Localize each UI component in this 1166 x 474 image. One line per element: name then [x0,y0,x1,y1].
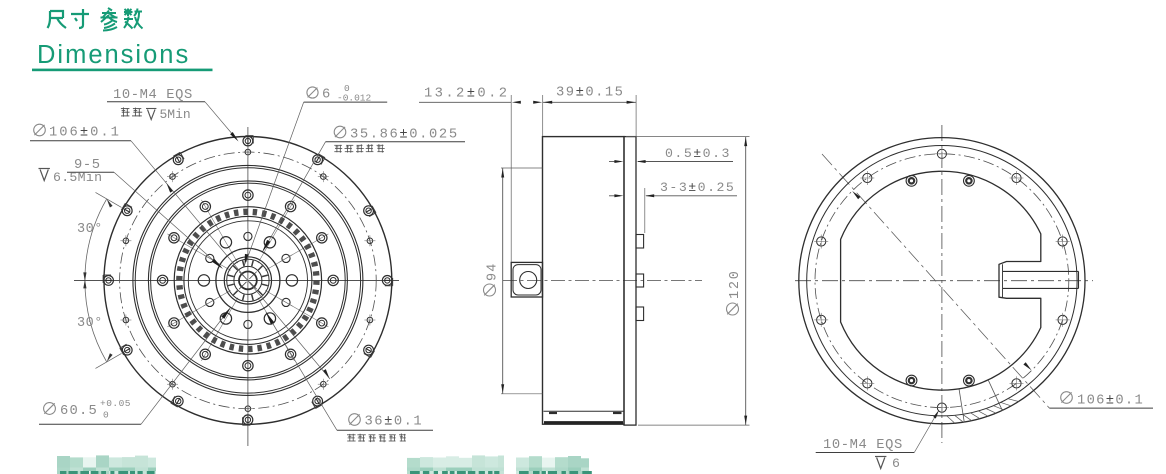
svg-text:106±0.1: 106±0.1 [1077,394,1144,409]
svg-text:10-M4 EQS: 10-M4 EQS [823,438,903,453]
svg-text:+0.05: +0.05 [100,398,131,409]
svg-text:5Min: 5Min [160,107,191,122]
svg-text:3-3±0.25: 3-3±0.25 [660,180,735,195]
svg-text:60.5: 60.5 [60,404,98,419]
svg-text:Dimensions: Dimensions [37,41,190,69]
svg-text:0.5±0.3: 0.5±0.3 [665,146,731,161]
svg-text:35.86±0.025: 35.86±0.025 [350,128,459,143]
svg-text:6: 6 [322,88,331,103]
svg-text:36±0.1: 36±0.1 [365,415,424,430]
svg-text:6: 6 [892,456,900,471]
svg-text:120: 120 [728,269,743,299]
svg-text:30°: 30° [77,316,103,331]
svg-text:30°: 30° [77,222,103,237]
svg-text:10-M4 EQS: 10-M4 EQS [113,88,193,103]
svg-text:6.5Min: 6.5Min [53,170,102,185]
svg-text:94: 94 [486,262,501,281]
svg-text:0: 0 [103,410,109,421]
svg-text:39±0.15: 39±0.15 [556,86,624,101]
svg-text:106±0.1: 106±0.1 [49,126,121,141]
svg-text:13.2±0.2: 13.2±0.2 [424,87,509,102]
